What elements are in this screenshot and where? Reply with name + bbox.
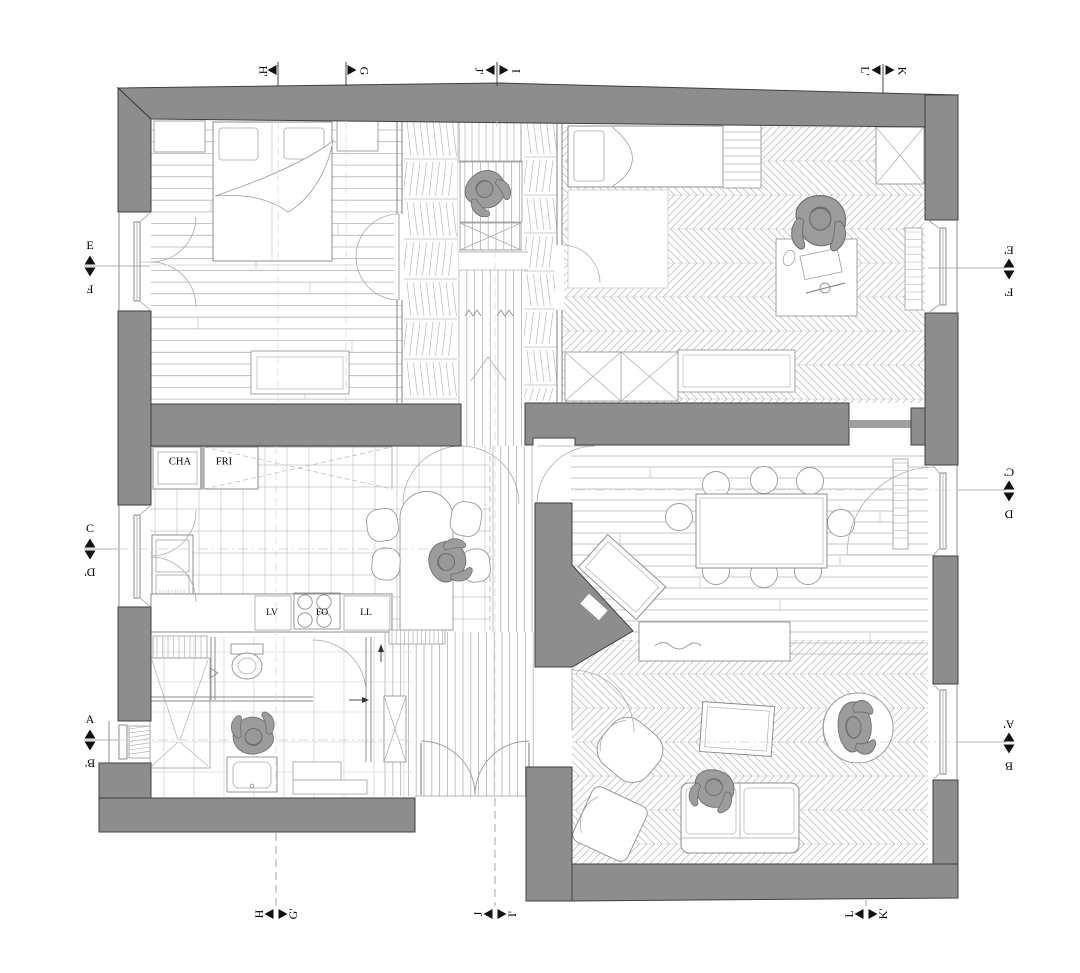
svg-text:H': H' — [256, 66, 270, 77]
svg-text:J': J' — [472, 68, 486, 75]
svg-text:FRI: FRI — [216, 456, 233, 467]
svg-text:F: F — [86, 282, 93, 296]
svg-text:G': G' — [286, 909, 300, 920]
svg-text:B': B' — [85, 756, 95, 770]
svg-text:A': A' — [1004, 717, 1015, 731]
svg-text:G: G — [357, 67, 371, 76]
svg-text:J: J — [471, 911, 485, 916]
svg-text:FO: FO — [316, 608, 328, 618]
svg-text:L': L' — [858, 66, 872, 76]
svg-text:CHA: CHA — [169, 456, 192, 467]
svg-text:C': C' — [1004, 465, 1014, 479]
svg-text:D': D' — [85, 565, 96, 579]
svg-text:L: L — [842, 910, 856, 917]
svg-text:LL: LL — [360, 608, 372, 618]
svg-text:D: D — [1004, 507, 1013, 521]
svg-text:F': F' — [1005, 285, 1014, 299]
svg-text:E: E — [86, 238, 93, 252]
svg-text:I': I' — [505, 911, 519, 917]
svg-text:A: A — [86, 712, 95, 726]
svg-text:K: K — [895, 67, 909, 76]
svg-text:B: B — [1005, 759, 1013, 773]
svg-text:I: I — [509, 69, 523, 73]
svg-text:E': E' — [1004, 243, 1014, 257]
svg-text:K': K' — [876, 909, 890, 920]
svg-text:H: H — [252, 909, 266, 918]
svg-text:C: C — [86, 521, 94, 535]
